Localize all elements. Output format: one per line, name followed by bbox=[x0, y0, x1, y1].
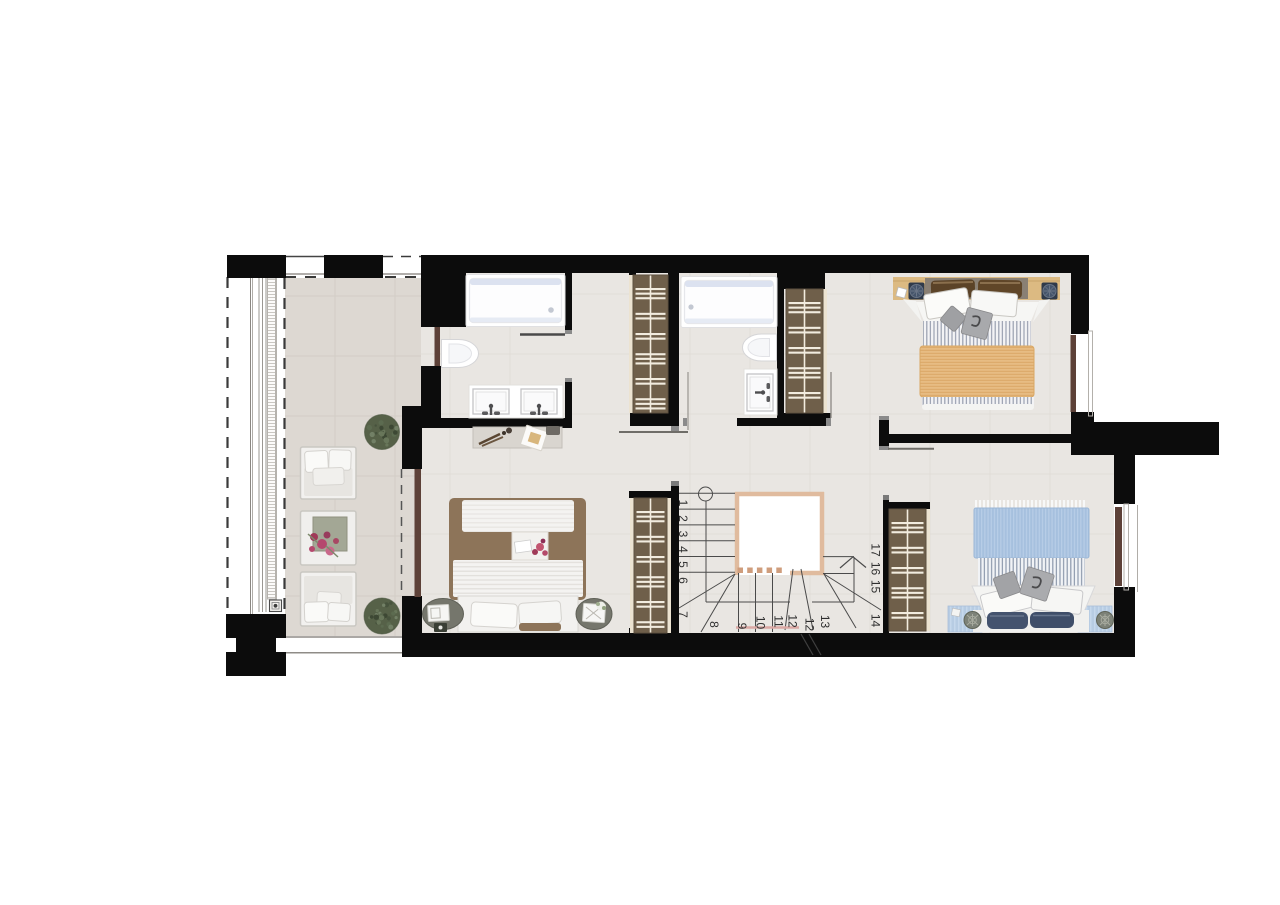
svg-text:12: 12 bbox=[803, 618, 817, 632]
svg-text:16: 16 bbox=[869, 562, 883, 576]
svg-text:5: 5 bbox=[676, 561, 690, 568]
svg-text:1: 1 bbox=[676, 500, 690, 507]
svg-text:6: 6 bbox=[676, 577, 690, 584]
svg-text:15: 15 bbox=[869, 580, 883, 594]
svg-text:14: 14 bbox=[869, 614, 883, 628]
svg-text:12: 12 bbox=[786, 614, 800, 628]
svg-text:13: 13 bbox=[818, 615, 832, 629]
svg-text:8: 8 bbox=[707, 621, 721, 628]
svg-text:3: 3 bbox=[676, 531, 690, 538]
svg-text:2: 2 bbox=[676, 515, 690, 522]
svg-text:4: 4 bbox=[676, 546, 690, 553]
svg-text:11: 11 bbox=[772, 615, 786, 628]
svg-text:7: 7 bbox=[676, 611, 690, 618]
svg-text:9: 9 bbox=[735, 623, 749, 630]
svg-text:17: 17 bbox=[869, 543, 883, 557]
svg-text:10: 10 bbox=[754, 616, 768, 630]
